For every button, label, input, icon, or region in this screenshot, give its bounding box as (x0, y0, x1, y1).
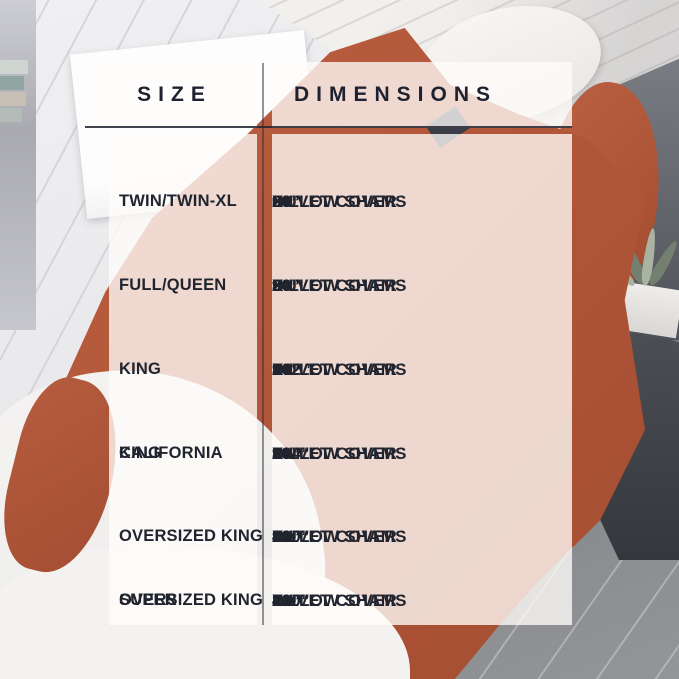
height-value: 40” (272, 589, 300, 612)
height-value: 30” (272, 274, 300, 297)
height-value: 36” (272, 358, 300, 381)
book-spine (0, 60, 28, 74)
height-value: 40” (272, 525, 300, 548)
size-chart-infographic: SIZE DIMENSIONS TWIN/TWIN-XL FULL/QUEEN … (0, 0, 679, 679)
book-spine (0, 76, 24, 90)
size-header-panel: SIZE (85, 62, 257, 128)
book-spine (0, 108, 22, 122)
size-header: SIZE (130, 83, 212, 107)
header-divider-line (85, 126, 572, 128)
height-value: 30” (272, 190, 300, 213)
book-spine (0, 92, 26, 106)
size-column-panel: TWIN/TWIN-XL FULL/QUEEN KING CALIFORNIA … (109, 134, 257, 625)
height-value: 36” (272, 442, 300, 465)
dimensions-header-panel: DIMENSIONS (272, 62, 572, 128)
window-frame (0, 0, 36, 330)
dimensions-column-panel: DUVET COVER 68” X 90” PILLOW SHAMS 20” X… (272, 134, 572, 625)
column-divider-line (262, 63, 264, 625)
dimensions-header: DIMENSIONS (294, 83, 497, 107)
